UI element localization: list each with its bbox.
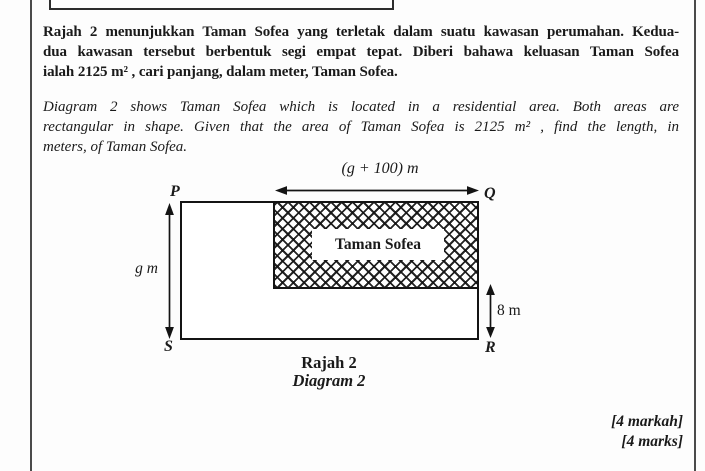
diagram-caption-english: Diagram 2: [254, 371, 404, 391]
diagram-width-label: (g + 100) m: [297, 160, 463, 178]
diagram-offset-label: 8 m: [497, 302, 521, 320]
page-border-right: [694, 0, 696, 471]
taman-sofea-label: Taman Sofea: [312, 229, 444, 260]
previous-answer-box-remnant: [49, 0, 394, 10]
question-text-malay: Rajah 2 menunjukkan Taman Sofea yang ter…: [43, 23, 679, 82]
double-arrow-horizontal-icon: [275, 184, 479, 202]
question-text-english: Diagram 2 shows Taman Sofea which is loc…: [43, 97, 679, 157]
question-line: rectangular in shape. Given that the are…: [43, 117, 679, 137]
question-line: dua kawasan tersebut berbentuk segi empa…: [43, 43, 679, 63]
page-border-left: [30, 0, 32, 471]
question-line: Rajah 2 menunjukkan Taman Sofea yang ter…: [43, 23, 679, 43]
double-arrow-vertical-g-icon: [163, 203, 176, 344]
exam-page: Rajah 2 menunjukkan Taman Sofea yang ter…: [0, 0, 705, 471]
question-line: ialah 2125 m² , cari panjang, dalam mete…: [43, 63, 679, 83]
question-line: Diagram 2 shows Taman Sofea which is loc…: [43, 97, 679, 117]
question-line: meters, of Taman Sofea.: [43, 137, 679, 157]
diagram-height-label: g m: [128, 260, 158, 278]
diagram-caption-malay: Rajah 2: [254, 353, 404, 373]
marks-malay: [4 markah]: [450, 412, 683, 432]
corner-label-q: Q: [484, 185, 496, 203]
marks-allocation: [4 markah] [4 marks]: [450, 412, 683, 451]
marks-english: [4 marks]: [450, 432, 683, 452]
double-arrow-vertical-8m-icon: [484, 284, 497, 343]
corner-label-p: P: [170, 183, 180, 201]
